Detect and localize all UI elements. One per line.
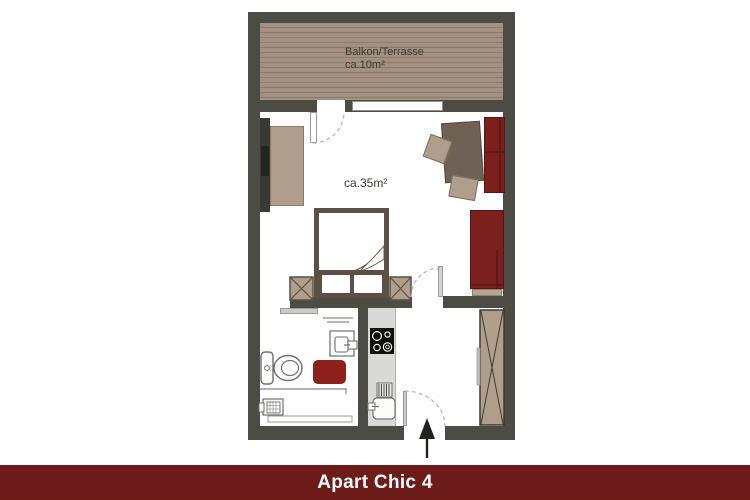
- balcony-door-swing-arc: [313, 112, 344, 143]
- entrance-door-swing-arc: [405, 391, 445, 426]
- sideboard-left: [270, 126, 304, 206]
- wall-bottom: [248, 426, 515, 440]
- balcony-door-opening: [317, 100, 345, 112]
- living-room-area-label: ca.35m²: [344, 176, 387, 190]
- apartment-floor-plan: Balkon/Terrasse ca.10m² ca.35m²: [0, 0, 750, 500]
- plan-title: Apart Chic 4: [317, 472, 433, 494]
- wall-hallway: [443, 296, 505, 308]
- bath-mat: [313, 360, 346, 384]
- shower-area: [259, 389, 352, 422]
- wall-left: [248, 12, 260, 440]
- wall-top: [248, 12, 515, 23]
- plan-title-bar: Apart Chic 4: [0, 465, 750, 500]
- toilet: [261, 352, 302, 384]
- sofa-lower: [470, 210, 504, 289]
- wall-bed-headboard: [290, 297, 412, 308]
- room-door-swing-arc: [411, 268, 440, 297]
- entrance-opening: [404, 426, 445, 440]
- entrance-door-leaf: [403, 391, 407, 426]
- wall-right: [503, 12, 515, 440]
- wall-kitchen: [358, 308, 368, 426]
- sofa-bench: [472, 289, 502, 296]
- room-door-leaf: [438, 266, 443, 297]
- balcony-window: [352, 101, 443, 111]
- hall-closet: [477, 310, 504, 425]
- washbasin: [323, 318, 357, 356]
- balcony-area-label: ca.10m²: [345, 59, 424, 72]
- balcony-name-label: Balkon/Terrasse: [345, 46, 424, 59]
- kitchen-counter: [368, 308, 396, 426]
- chair-bottom: [448, 175, 478, 201]
- sofa-upper: [484, 117, 505, 193]
- bed: [314, 208, 389, 298]
- balcony-door-leaf: [310, 112, 317, 143]
- balcony-label: Balkon/Terrasse ca.10m²: [345, 46, 424, 72]
- tv-screen: [261, 146, 269, 176]
- bathroom-door-leaf: [280, 308, 318, 314]
